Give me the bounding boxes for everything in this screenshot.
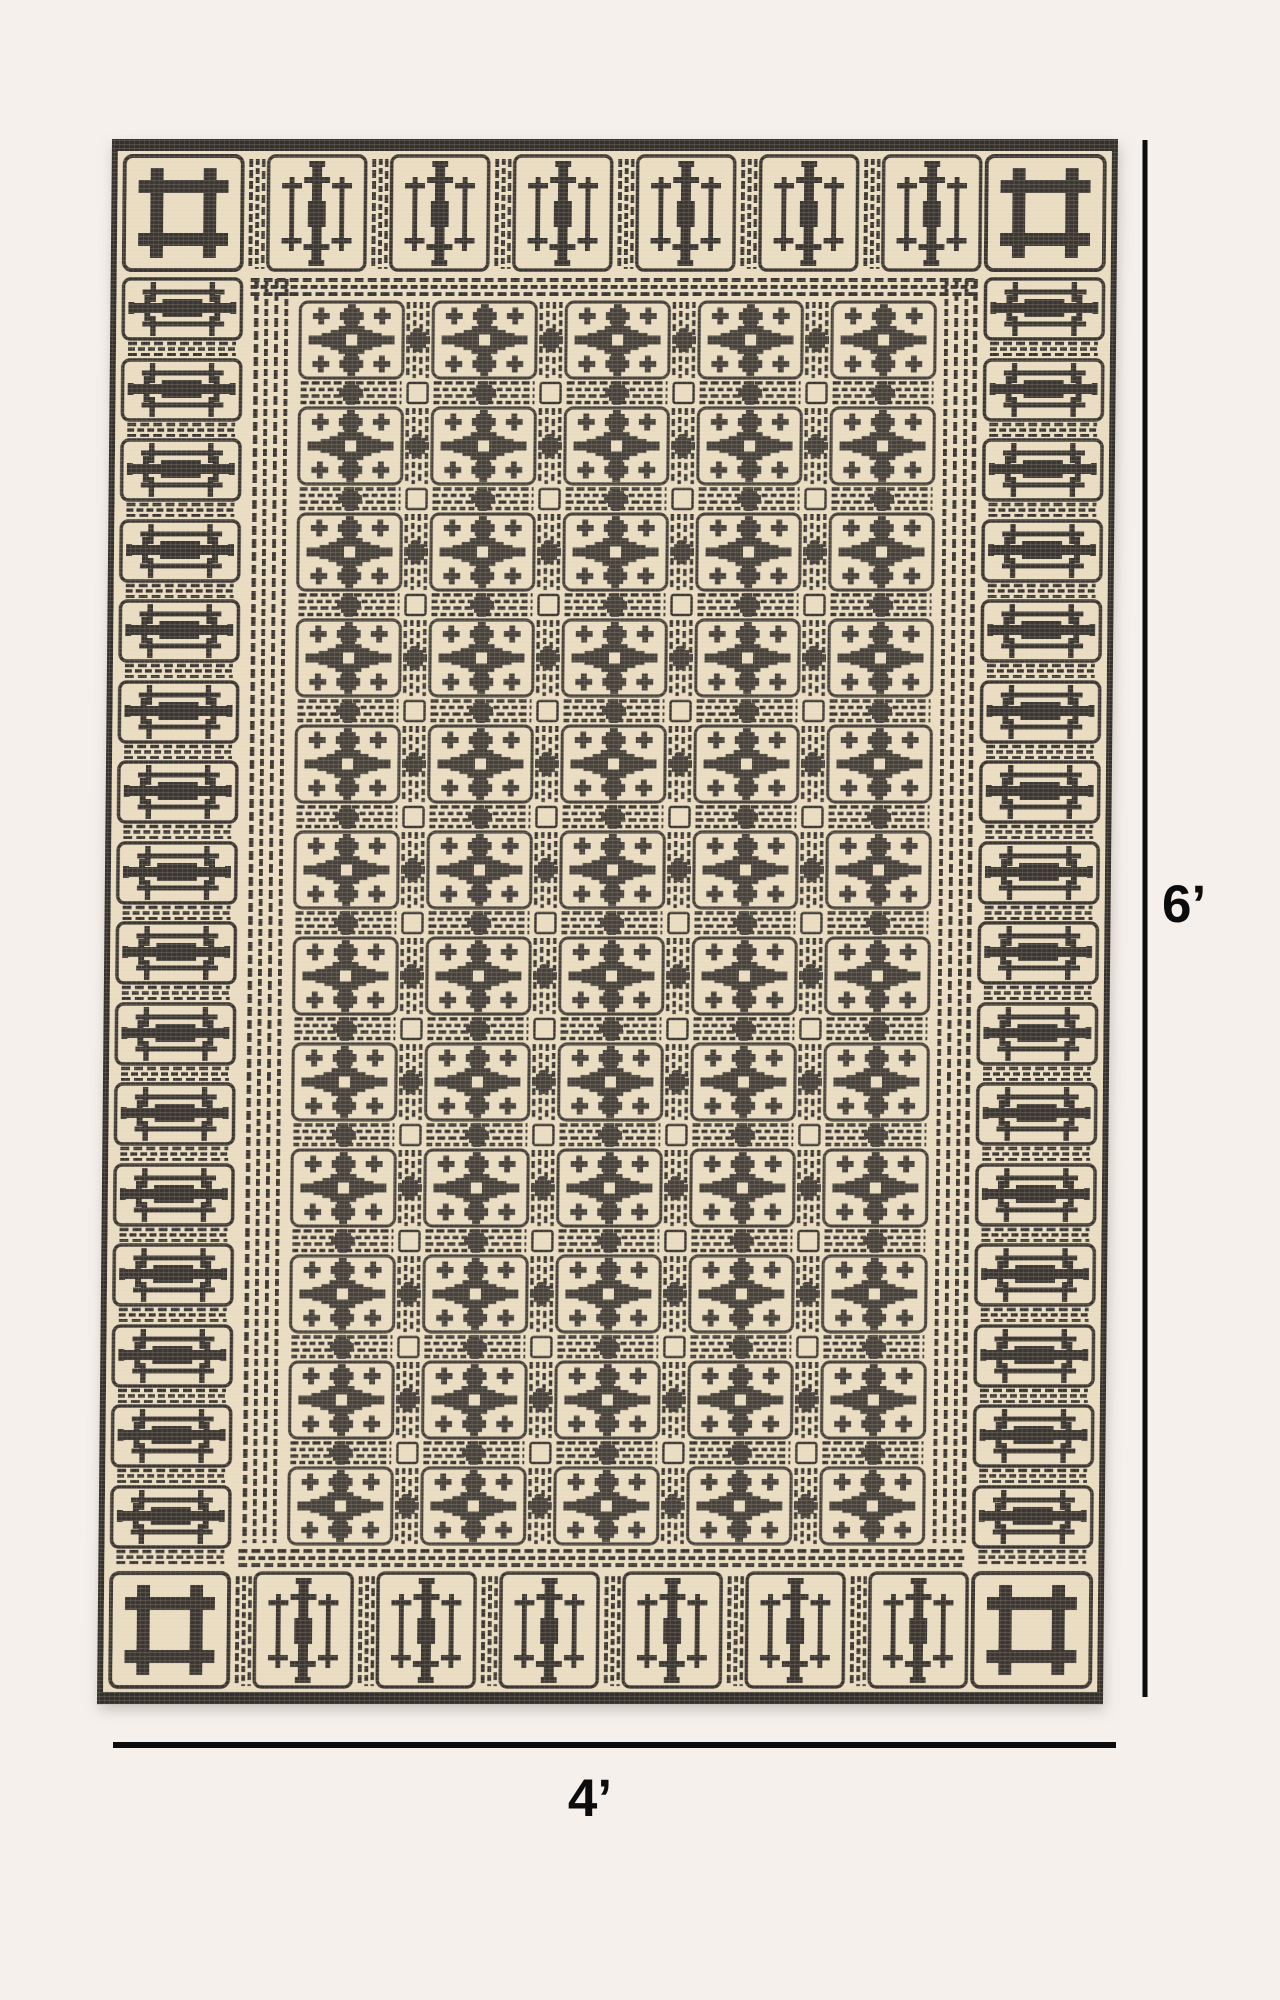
width-label: 4’ — [568, 1769, 612, 1828]
product-dimensions-image: 6’ 4’ — [0, 0, 1280, 2000]
rug-image — [97, 139, 1118, 1704]
page-background: 6’ 4’ — [0, 0, 1280, 2000]
rug-weave-texture — [97, 139, 1118, 1704]
height-label: 6’ — [1162, 875, 1206, 934]
